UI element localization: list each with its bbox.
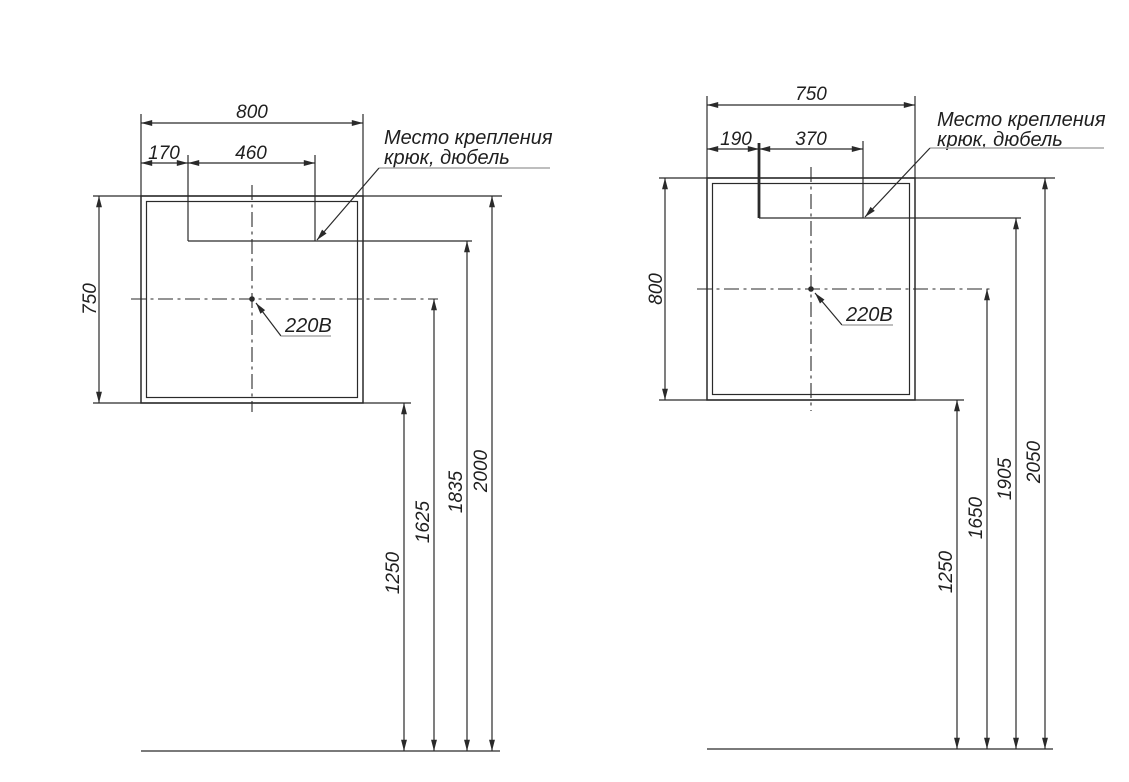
outlet-label: 220В — [284, 315, 332, 337]
floor-to-bottom-label: 1250 — [383, 551, 404, 594]
height-dimension-label: 750 — [80, 283, 101, 315]
mount-note-line2: крюк, дюбель — [384, 147, 510, 169]
mount-note-leader-line — [317, 168, 379, 240]
floor-to-outlet-label: 1625 — [413, 500, 434, 543]
hook-offset-label: 170 — [148, 143, 180, 164]
outlet-point — [808, 286, 814, 292]
outlet-point — [249, 296, 255, 302]
outlet-leader-line — [815, 293, 842, 325]
hook-span-label: 370 — [795, 129, 827, 150]
hook-offset-label: 190 — [720, 129, 752, 150]
width-dimension-label: 800 — [236, 102, 268, 123]
floor-to-hook-label: 1835 — [446, 470, 467, 513]
width-dimension-label: 750 — [795, 84, 827, 105]
right-mirror-drawing: 750 190 370 800 220В Место крепления кр — [646, 84, 1106, 749]
mount-note-leader-line — [865, 148, 930, 217]
floor-to-outlet-label: 1650 — [966, 496, 987, 539]
mount-note-line1: Место крепления — [937, 109, 1106, 131]
outlet-label: 220В — [845, 304, 893, 326]
height-dimension-label: 800 — [646, 273, 667, 305]
floor-to-top-label: 2000 — [471, 449, 492, 493]
floor-to-top-label: 2050 — [1024, 440, 1045, 484]
hook-span-label: 460 — [235, 143, 267, 164]
floor-to-bottom-label: 1250 — [936, 550, 957, 593]
outlet-leader-line — [256, 303, 281, 336]
mount-note-line1: Место крепления — [384, 127, 553, 149]
left-mirror-drawing: 800 170 460 750 220В Место крепления кр — [80, 102, 553, 751]
mounting-diagram-page: 800 170 460 750 220В Место крепления кр — [0, 0, 1129, 782]
technical-drawing-canvas: 800 170 460 750 220В Место крепления кр — [0, 0, 1129, 782]
floor-to-hook-label: 1905 — [995, 457, 1016, 500]
